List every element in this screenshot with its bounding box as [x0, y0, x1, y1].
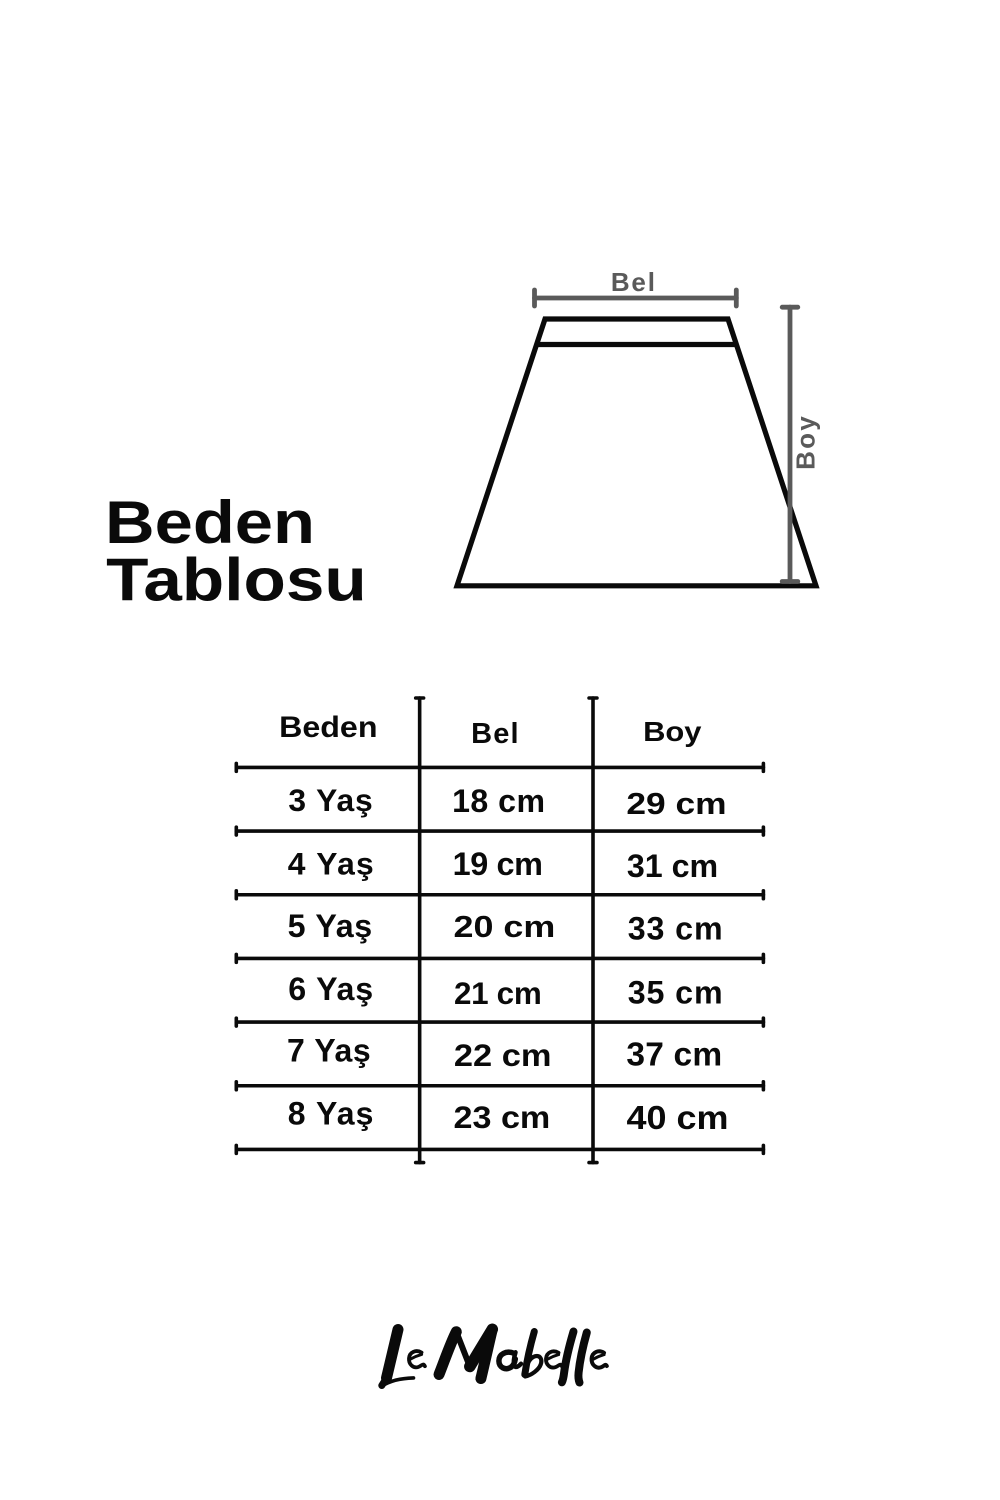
- svg-text:3 Yaş: 3 Yaş: [288, 782, 373, 818]
- svg-text:31 cm: 31 cm: [627, 848, 718, 884]
- svg-text:33 cm: 33 cm: [628, 910, 724, 946]
- svg-text:20 cm: 20 cm: [454, 909, 556, 944]
- svg-text:5 Yaş: 5 Yaş: [288, 908, 373, 944]
- svg-text:7 Yaş: 7 Yaş: [287, 1033, 371, 1069]
- svg-text:Bel: Bel: [471, 718, 519, 750]
- svg-text:22 cm: 22 cm: [454, 1037, 552, 1073]
- svg-text:35 cm: 35 cm: [628, 975, 724, 1011]
- svg-text:Bel: Bel: [611, 267, 657, 297]
- svg-text:Tablosu: Tablosu: [106, 546, 367, 613]
- svg-text:23 cm: 23 cm: [454, 1099, 551, 1135]
- svg-text:37 cm: 37 cm: [626, 1036, 722, 1073]
- svg-text:40 cm: 40 cm: [627, 1099, 729, 1136]
- svg-text:8 Yaş: 8 Yaş: [288, 1096, 375, 1132]
- svg-text:18 cm: 18 cm: [452, 783, 545, 819]
- svg-text:29 cm: 29 cm: [626, 788, 726, 821]
- svg-text:21 cm: 21 cm: [454, 976, 542, 1011]
- svg-text:6 Yaş: 6 Yaş: [288, 971, 374, 1007]
- svg-text:4 Yaş: 4 Yaş: [288, 845, 375, 881]
- svg-text:Boy: Boy: [643, 716, 702, 747]
- svg-text:19 cm: 19 cm: [453, 846, 543, 882]
- svg-text:Boy: Boy: [791, 414, 821, 470]
- svg-text:Beden: Beden: [279, 711, 377, 744]
